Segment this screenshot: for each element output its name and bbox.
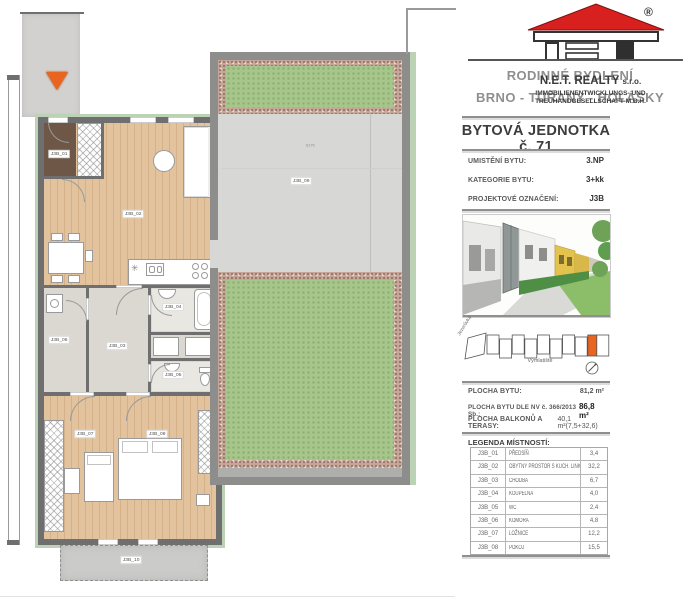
- coffee-table: [153, 150, 175, 172]
- facade-trim: [410, 52, 416, 485]
- legend-code: J3B_06: [471, 515, 506, 527]
- detail-row: PROJEKTOVÉ OZNAČENÍ: J3B: [468, 194, 604, 206]
- legend-table: J3B_01 PŘEDSÍŇ 3,4 J3B_02 OBYTNÝ PROSTOR…: [470, 447, 608, 555]
- legend-code: J3B_05: [471, 502, 506, 514]
- chair: [51, 233, 63, 241]
- stove-burner: [192, 272, 199, 279]
- detail-row: UMISTĚNÍ BYTU: 3.NP: [468, 156, 604, 168]
- legend-row: J3B_06 KOMORA 4,8: [471, 515, 607, 528]
- legend-area: 3,4: [580, 448, 607, 460]
- terrace-dimension: 6175: [306, 144, 315, 148]
- legend-name: WC: [506, 502, 580, 514]
- projection-line: [406, 8, 456, 10]
- bathtub-inner: [197, 292, 211, 326]
- stove-burner: [201, 272, 208, 279]
- detail-label: KATEGORIE BYTU:: [468, 177, 534, 184]
- area-label: PLOCHA BALKONŮ A TERASY:: [468, 416, 557, 430]
- pillow: [122, 441, 148, 453]
- company-name: N.E.T. REALTY s.r.o.: [498, 75, 683, 87]
- room-label-hall: J3B_03: [106, 342, 128, 350]
- detail-value: 3.NP: [586, 156, 604, 165]
- legend-area: 4,0: [580, 488, 607, 500]
- kitchen-sink-basin: [149, 266, 155, 273]
- room-label-storage: J3B_06: [48, 336, 70, 344]
- terrace-joint-line: [370, 114, 371, 272]
- legend-row: J3B_05 WC 2,4: [471, 502, 607, 515]
- company-line2: IMMOBILIENENTWICKLUNGS- UND: [498, 90, 683, 97]
- area-label: PLOCHA BYTU:: [468, 388, 522, 395]
- grass-strip-top: [226, 66, 394, 108]
- stove-burner: [201, 263, 208, 270]
- legend-name: PŘEDSÍŇ: [506, 448, 580, 460]
- legend-name: KOUPELNA: [506, 488, 580, 500]
- dining-table: [48, 242, 84, 274]
- legend-name: LOŽNICE: [506, 528, 580, 540]
- legend-code: J3B_03: [471, 475, 506, 487]
- legend-name: CHODBA: [506, 475, 580, 487]
- pillow: [152, 441, 178, 453]
- divider: [462, 149, 610, 151]
- divider: [462, 381, 610, 383]
- area-row: PLOCHA BALKONŮ A TERASY: 40,1 m²(7,5+32,…: [468, 416, 604, 428]
- area-value: 40,1 m²(7,5+32,6): [557, 416, 604, 430]
- legend-area: 2,4: [580, 502, 607, 514]
- wall-segment: [20, 12, 84, 14]
- legend-area: 15,5: [580, 542, 607, 554]
- desk: [64, 468, 80, 494]
- company-name-text: N.E.T. REALTY: [540, 75, 619, 87]
- detail-label: UMISTĚNÍ BYTU:: [468, 158, 526, 165]
- terrace-access: [210, 240, 222, 268]
- company-line3: TREUHANDGESELLSCHAFT M.B.H.: [498, 98, 683, 105]
- project-rendering-image: [463, 215, 610, 317]
- cooktop-symbol-icon: ✳: [131, 263, 139, 274]
- room-label-balcony: J3B_10: [120, 556, 142, 564]
- entrance-arrow-icon: [46, 72, 68, 90]
- garden-grass: [226, 280, 394, 460]
- divider: [462, 555, 610, 557]
- window: [130, 117, 156, 123]
- nightstand: [196, 494, 210, 506]
- info-panel: ® RODINNÉ BYDLENÍ BRNO - TUŘANY - HOLÁSK…: [455, 0, 683, 600]
- legend-row: J3B_08 POKOJ 15,5: [471, 542, 607, 554]
- area-row: PLOCHA BYTU: 81,2 m²: [468, 388, 604, 400]
- legend-row: J3B_07 LOŽNICE 12,2: [471, 528, 607, 541]
- floorplan-sheet: ✳: [0, 0, 683, 600]
- site-plan-strip: [462, 322, 612, 378]
- legend-row: J3B_04 KOUPELNA 4,0: [471, 488, 607, 501]
- room-label-wc: J3B_05: [162, 371, 184, 379]
- floorplan-area: ✳: [0, 0, 460, 600]
- chair: [68, 233, 80, 241]
- kitchen-sink-basin: [157, 266, 162, 273]
- closet: [153, 337, 179, 356]
- stove-burner: [192, 263, 199, 270]
- wall-segment: [101, 123, 104, 176]
- room-label-terrace: J3B_09: [290, 177, 312, 185]
- room-label-room2: J3B_08: [146, 430, 168, 438]
- legend-name: KOMORA: [506, 515, 580, 527]
- legend-code: J3B_08: [471, 542, 506, 554]
- legend-code: J3B_04: [471, 488, 506, 500]
- neighbor-wall-strip: [8, 75, 20, 545]
- detail-row: KATEGORIE BYTU: 3+kk: [468, 175, 604, 187]
- legend-name: OBYTNÝ PROSTOR S KUCH. LINKOU: [506, 461, 580, 473]
- room-label-bathroom: J3B_04: [162, 303, 184, 311]
- wardrobe: [44, 420, 64, 532]
- divider: [462, 209, 610, 211]
- divider: [462, 432, 610, 434]
- washing-machine-drum: [50, 299, 59, 308]
- wall-segment: [7, 75, 19, 80]
- room-label-entry: J3B_01: [48, 150, 70, 158]
- registered-mark: ®: [644, 5, 653, 19]
- legend-area: 32,2: [580, 461, 607, 473]
- pillow: [87, 455, 111, 465]
- area-row: PLOCHA BYTU DLE NV č. 366/2013 Sb.: 86,8…: [468, 402, 604, 414]
- garden-path: [218, 468, 402, 477]
- divider: [462, 116, 610, 118]
- room-label-living: J3B_02: [122, 210, 144, 218]
- wall-segment: [44, 176, 104, 179]
- detail-value: 3+kk: [586, 175, 604, 184]
- chair: [51, 275, 63, 283]
- window: [168, 117, 194, 123]
- detail-value: J3B: [589, 194, 604, 203]
- entry-wardrobe: [77, 123, 103, 178]
- legend-area: 4,8: [580, 515, 607, 527]
- closet: [185, 337, 211, 356]
- detail-label: PROJEKTOVÉ OZNAČENÍ:: [468, 196, 559, 203]
- legend-name: POKOJ: [506, 542, 580, 554]
- area-value: 81,2 m²: [580, 388, 604, 395]
- terrace-joint-line: [222, 168, 402, 169]
- company-suffix: s.r.o.: [622, 77, 641, 86]
- legend-row: J3B_02 OBYTNÝ PROSTOR S KUCH. LINKOU 32,…: [471, 461, 607, 474]
- entrance-walkway: [22, 14, 80, 117]
- chair: [68, 275, 80, 283]
- room-label-bedroom: J3B_07: [74, 430, 96, 438]
- legend-code: J3B_01: [471, 448, 506, 460]
- legend-row: J3B_03 CHODBA 6,7: [471, 475, 607, 488]
- wall-segment: [151, 332, 216, 335]
- legend-row: J3B_01 PŘEDSÍŇ 3,4: [471, 448, 607, 461]
- chair: [85, 250, 93, 262]
- legend-area: 12,2: [580, 528, 607, 540]
- legend-code: J3B_07: [471, 528, 506, 540]
- street-name-bottom: Výmlatiště: [504, 358, 576, 363]
- legend-area: 6,7: [580, 475, 607, 487]
- wall-segment: [7, 540, 19, 545]
- legend-code: J3B_02: [471, 461, 506, 473]
- page-edge-line: [0, 596, 455, 597]
- projection-line: [406, 8, 408, 54]
- legend-title: LEGENDA MÍSTNOSTÍ:: [468, 438, 550, 447]
